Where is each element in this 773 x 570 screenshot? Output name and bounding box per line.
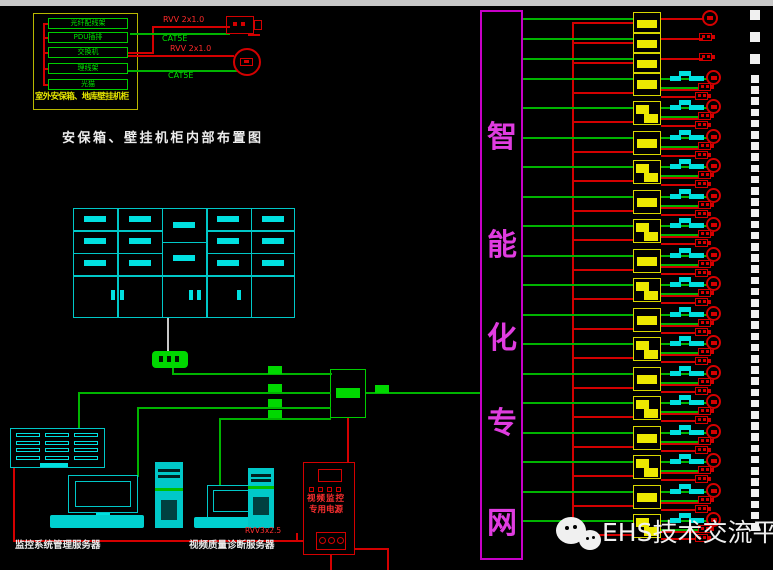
- step-symbol: [670, 400, 681, 405]
- box-camera-dot: [703, 241, 706, 244]
- keyboard-1: [50, 515, 144, 528]
- box-camera-dot: [233, 22, 237, 26]
- tv-wall-monitor: [129, 216, 151, 222]
- switch-junction-bar: [336, 388, 360, 398]
- box-camera-lens: [708, 241, 711, 245]
- wire: [572, 42, 633, 44]
- step-symbol: [670, 489, 681, 494]
- box-camera-dot: [706, 321, 709, 324]
- cable-label-cat5e-1: CAT5E: [162, 35, 187, 44]
- cabinet-door-handle: [197, 290, 201, 300]
- border-dash: [751, 422, 759, 430]
- border-dash: [751, 501, 759, 509]
- box-camera-lens: [711, 232, 714, 236]
- step-symbol: [689, 489, 704, 494]
- border-dash: [750, 54, 760, 64]
- border-dash: [751, 411, 759, 419]
- wire: [572, 22, 574, 534]
- wire: [661, 207, 699, 209]
- border-dash: [751, 131, 759, 139]
- tv-wall-monitor: [217, 238, 239, 244]
- backbone-char: 化: [483, 313, 521, 357]
- switch-box-step: [644, 468, 658, 477]
- box-camera-dot: [703, 448, 706, 451]
- box-camera-dot: [703, 271, 706, 274]
- box-camera-dot: [698, 182, 701, 185]
- box-camera-dot: [701, 380, 704, 383]
- box-camera-icon: [695, 505, 708, 513]
- wire: [523, 18, 633, 20]
- wire: [523, 284, 633, 286]
- box-camera-lens: [711, 350, 714, 354]
- border-dash: [751, 265, 759, 273]
- wire: [661, 450, 696, 452]
- border-dash: [751, 109, 759, 117]
- border-dash: [751, 288, 759, 296]
- box-camera-lens: [711, 85, 714, 89]
- box-camera-icon: [695, 416, 708, 424]
- wire: [572, 446, 633, 448]
- rack-unit: [74, 448, 98, 452]
- box-camera-icon: [698, 171, 711, 179]
- wire: [572, 387, 633, 389]
- rack-unit: [45, 448, 69, 452]
- border-dash: [751, 467, 759, 475]
- box-camera-dot: [698, 477, 701, 480]
- wire: [661, 443, 699, 445]
- box-camera-icon: [695, 121, 708, 129]
- step-symbol: [689, 105, 704, 110]
- power-box-text-1: 视频监控: [307, 495, 345, 504]
- wire: [523, 137, 633, 139]
- switch-box-step: [644, 232, 658, 241]
- box-camera-icon: [695, 210, 708, 218]
- wire: [661, 243, 696, 245]
- wechat-icon-eye: [592, 536, 595, 539]
- border-dash: [751, 355, 759, 363]
- media-converter-port: [159, 356, 163, 362]
- wechat-icon: [579, 530, 601, 550]
- wire: [355, 548, 388, 550]
- box-camera-lens: [708, 271, 711, 275]
- step-symbol: [670, 194, 681, 199]
- step-symbol: [689, 430, 704, 435]
- wire: [661, 18, 703, 20]
- wire: [661, 236, 699, 238]
- box-camera-icon: [698, 289, 711, 297]
- cable-tag: [375, 385, 389, 393]
- box-camera-dot: [703, 507, 706, 510]
- cable-label-rvv-2: RVV 2x1.0: [170, 45, 211, 54]
- cabinet-door-handle: [111, 290, 115, 300]
- step-symbol: [689, 312, 704, 317]
- box-camera-lens: [708, 123, 711, 127]
- box-camera-icon: [698, 230, 711, 238]
- wire: [661, 148, 699, 150]
- box-camera-icon: [698, 496, 711, 504]
- wire: [137, 407, 139, 477]
- wire: [13, 468, 15, 541]
- wire: [572, 328, 633, 330]
- switch-box-bar: [637, 60, 657, 68]
- tv-wall-monitor: [84, 260, 106, 266]
- rack-unit: [74, 456, 98, 460]
- border-dash: [751, 445, 759, 453]
- border-dash: [751, 478, 759, 486]
- wire: [661, 118, 699, 120]
- box-camera-lens: [711, 498, 714, 502]
- step-symbol: [689, 371, 704, 376]
- wire: [162, 242, 206, 244]
- switch-box-bar: [637, 198, 657, 207]
- wire: [523, 58, 633, 60]
- box-camera-dot: [703, 330, 706, 333]
- wire: [661, 155, 696, 157]
- power-socket: [337, 537, 344, 544]
- switch-box-step: [636, 400, 649, 409]
- box-camera-dot: [706, 173, 709, 176]
- box-camera-dot: [698, 123, 701, 126]
- border-dash: [751, 299, 759, 307]
- step-symbol: [689, 459, 704, 464]
- box-camera-lens: [708, 212, 711, 216]
- wire: [152, 26, 154, 53]
- tower-2-vent: [251, 479, 271, 482]
- switch-box-bar: [637, 257, 657, 266]
- box-camera-icon: [695, 269, 708, 277]
- box-camera-icon: [695, 475, 708, 483]
- box-camera-icon: [695, 328, 708, 336]
- box-camera-icon: [695, 357, 708, 365]
- tower-1-vent: [158, 475, 180, 478]
- box-camera-icon: [695, 92, 708, 100]
- top-border-strip: [0, 0, 773, 6]
- box-camera-icon: [695, 446, 708, 454]
- wire: [572, 298, 633, 300]
- box-camera-icon: [698, 378, 711, 386]
- monitor-1-screen: [75, 481, 131, 507]
- cable-tag: [268, 366, 282, 374]
- box-camera-lens: [708, 300, 711, 304]
- box-camera-lens: [708, 389, 711, 393]
- wire: [572, 505, 633, 507]
- rack-base: [40, 463, 68, 467]
- wire: [152, 26, 230, 28]
- box-camera-icon: [695, 298, 708, 306]
- box-camera-lens: [708, 507, 711, 511]
- cabinet-module: 理线架: [48, 63, 128, 74]
- box-camera-dot: [701, 409, 704, 412]
- dome-camera-core-dot: [244, 60, 249, 63]
- step-symbol: [670, 76, 681, 81]
- box-camera-icon: [698, 348, 711, 356]
- box-camera-lens: [711, 144, 714, 148]
- box-camera-icon: [698, 260, 711, 268]
- backbone-char: 能: [483, 220, 521, 264]
- box-camera-dot: [703, 389, 706, 392]
- wire: [78, 392, 80, 429]
- box-camera-dot: [703, 359, 706, 362]
- box-camera-lens: [708, 153, 711, 157]
- box-camera-dot: [703, 300, 706, 303]
- tower-2-vent: [251, 474, 271, 477]
- wire: [219, 418, 221, 486]
- dome-camera-core: [707, 16, 713, 20]
- box-camera-icon: [695, 151, 708, 159]
- switch-box-bar: [637, 139, 657, 148]
- wire: [330, 555, 332, 570]
- box-camera-dot: [701, 203, 704, 206]
- box-camera-dot: [706, 350, 709, 353]
- wire: [73, 253, 162, 255]
- dome-camera-core: [711, 312, 717, 316]
- wire: [661, 384, 699, 386]
- box-camera-lens: [711, 203, 714, 207]
- cabinet-door-handle: [237, 290, 241, 300]
- cabinet-module: 交换机: [48, 47, 128, 58]
- backbone-column: [480, 10, 523, 560]
- wire: [661, 354, 699, 356]
- wire: [523, 255, 633, 257]
- wire: [661, 502, 699, 504]
- wire: [572, 92, 633, 94]
- box-camera-lens: [254, 20, 262, 30]
- border-dash: [751, 489, 759, 497]
- box-camera-dot: [706, 380, 709, 383]
- power-socket: [328, 537, 335, 544]
- step-symbol: [689, 194, 704, 199]
- switch-box-bar: [637, 40, 657, 48]
- wire: [572, 22, 633, 24]
- border-dash: [751, 433, 759, 441]
- switch-box-step: [636, 282, 649, 291]
- box-camera-dot: [701, 144, 704, 147]
- box-camera-lens: [711, 439, 714, 443]
- step-symbol: [670, 430, 681, 435]
- border-dash: [750, 32, 760, 42]
- box-camera-lens: [708, 94, 711, 98]
- box-camera-dot: [703, 123, 706, 126]
- box-camera-dot: [698, 418, 701, 421]
- wire: [572, 239, 633, 241]
- box-camera-dot: [706, 468, 709, 471]
- dome-camera-core: [711, 76, 717, 80]
- wire: [137, 407, 331, 409]
- wire: [523, 78, 633, 80]
- power-socket: [319, 537, 326, 544]
- tower-1-bay: [161, 500, 177, 520]
- drawing-title: 安保箱、壁挂机柜内部布置图: [62, 132, 264, 146]
- dome-camera-core: [711, 489, 717, 493]
- cabinet-module: 光纤配线架: [48, 18, 128, 29]
- box-camera-dot: [707, 35, 710, 38]
- box-camera-lens: [711, 380, 714, 384]
- box-camera-dot: [703, 182, 706, 185]
- rack-unit: [45, 441, 69, 445]
- box-camera-dot: [706, 144, 709, 147]
- switch-box-step: [636, 341, 649, 350]
- dome-camera-core: [711, 341, 717, 345]
- cabinet-door-handle: [120, 290, 124, 300]
- box-camera-dot: [701, 498, 704, 501]
- wire: [206, 253, 295, 255]
- box-camera-dot: [703, 477, 706, 480]
- wire: [661, 361, 696, 363]
- box-camera-dot: [698, 300, 701, 303]
- box-camera-lens: [708, 330, 711, 334]
- wire: [661, 332, 696, 334]
- backbone-char: 网: [483, 498, 521, 542]
- step-symbol: [689, 76, 704, 81]
- border-dash: [751, 142, 759, 150]
- border-dash: [751, 120, 759, 128]
- tv-wall-monitor: [217, 216, 239, 222]
- step-symbol: [670, 371, 681, 376]
- box-camera-dot: [698, 507, 701, 510]
- wire: [661, 58, 703, 60]
- wire: [162, 208, 164, 318]
- tv-wall-monitor: [262, 260, 284, 266]
- wire: [387, 548, 389, 570]
- box-camera-dot: [703, 94, 706, 97]
- box-camera-icon: [699, 33, 712, 41]
- box-camera-lens: [711, 291, 714, 295]
- cable-label-rvv-1: RVV 2x1.0: [163, 16, 204, 25]
- rack-unit: [16, 448, 40, 452]
- dome-camera-core: [711, 371, 717, 375]
- box-camera-dot: [706, 498, 709, 501]
- box-camera-lens: [708, 418, 711, 422]
- cable-label-cat5e-2: CAT5E: [168, 72, 193, 81]
- wire: [572, 210, 633, 212]
- switch-box-step: [644, 173, 658, 182]
- box-camera-dot: [241, 22, 245, 26]
- rack-unit: [74, 441, 98, 445]
- wire: [523, 196, 633, 198]
- box-camera-icon: [695, 180, 708, 188]
- box-camera-lens: [712, 55, 715, 59]
- step-symbol: [670, 105, 681, 110]
- box-camera-lens: [711, 262, 714, 266]
- rack-unit: [16, 441, 40, 445]
- wire: [661, 125, 696, 127]
- switch-box-bar: [637, 316, 657, 325]
- step-symbol: [689, 223, 704, 228]
- box-camera-dot: [703, 153, 706, 156]
- cable-tag: [268, 384, 282, 392]
- box-camera-lens: [712, 35, 715, 39]
- border-dash: [751, 344, 759, 352]
- border-dash: [751, 232, 759, 240]
- cad-drawing-canvas: 室外安保箱、地库壁挂机柜 安保箱、壁挂机柜内部布置图 RVV 2x1.0 CAT…: [0, 0, 773, 570]
- switch-box-step: [636, 105, 649, 114]
- box-camera-dot: [703, 212, 706, 215]
- wire: [661, 273, 696, 275]
- border-dash: [751, 221, 759, 229]
- box-camera-dot: [706, 439, 709, 442]
- switch-box-bar: [637, 80, 657, 89]
- power-cable-note: RVV3x2.5: [245, 527, 281, 535]
- border-dash: [751, 153, 759, 161]
- wire: [523, 314, 633, 316]
- tv-wall-monitor: [262, 238, 284, 244]
- dome-camera-core: [711, 400, 717, 404]
- tv-wall-monitor: [217, 260, 239, 266]
- border-dash: [751, 310, 759, 318]
- step-symbol: [670, 253, 681, 258]
- switch-box-step: [644, 409, 658, 418]
- border-dash: [751, 333, 759, 341]
- wire: [661, 413, 699, 415]
- wire: [523, 225, 633, 227]
- box-camera-dot: [698, 153, 701, 156]
- step-symbol: [689, 253, 704, 258]
- wire: [251, 208, 253, 318]
- box-camera-dot: [707, 55, 710, 58]
- step-symbol: [670, 341, 681, 346]
- border-dash: [750, 10, 760, 20]
- switch-box-bar: [637, 20, 657, 28]
- rack-unit: [45, 433, 69, 437]
- rack-unit: [74, 433, 98, 437]
- power-box-switch: [327, 487, 332, 492]
- dome-camera-core: [711, 223, 717, 227]
- box-camera-icon: [695, 387, 708, 395]
- box-camera-dot: [701, 468, 704, 471]
- box-camera-lens: [711, 114, 714, 118]
- box-camera-dot: [698, 241, 701, 244]
- media-converter-port: [175, 356, 179, 362]
- server-label-1: 监控系统管理服务器: [15, 541, 101, 551]
- wire: [572, 62, 633, 64]
- backbone-char: 智: [483, 112, 521, 156]
- wire: [523, 107, 633, 109]
- wire: [347, 418, 349, 463]
- box-camera-dot: [706, 85, 709, 88]
- wire: [248, 34, 260, 36]
- wire: [78, 392, 331, 394]
- step-symbol: [670, 312, 681, 317]
- tower-2-led: [248, 486, 274, 489]
- box-camera-dot: [698, 389, 701, 392]
- step-symbol: [689, 282, 704, 287]
- dome-camera-core: [711, 164, 717, 168]
- box-camera-dot: [701, 85, 704, 88]
- wire: [572, 180, 633, 182]
- border-dash: [751, 377, 759, 385]
- box-camera-dot: [701, 321, 704, 324]
- server-label-2: 视频质量诊断服务器: [189, 541, 275, 551]
- wire: [661, 96, 696, 98]
- step-symbol: [689, 164, 704, 169]
- box-camera-icon: [698, 83, 711, 91]
- border-dash: [751, 86, 759, 94]
- wire: [523, 402, 633, 404]
- wire: [128, 55, 234, 57]
- wire: [73, 230, 162, 232]
- box-camera-lens: [711, 409, 714, 413]
- border-dash: [751, 389, 759, 397]
- box-camera-dot: [702, 55, 705, 58]
- box-camera-dot: [701, 114, 704, 117]
- box-camera-dot: [698, 330, 701, 333]
- power-box-text-2: 专用电源: [309, 506, 343, 515]
- box-camera-icon: [698, 142, 711, 150]
- wire: [572, 269, 633, 271]
- dome-camera-core: [711, 430, 717, 434]
- cabinet-door-handle: [189, 290, 193, 300]
- switch-box-bar: [637, 493, 657, 502]
